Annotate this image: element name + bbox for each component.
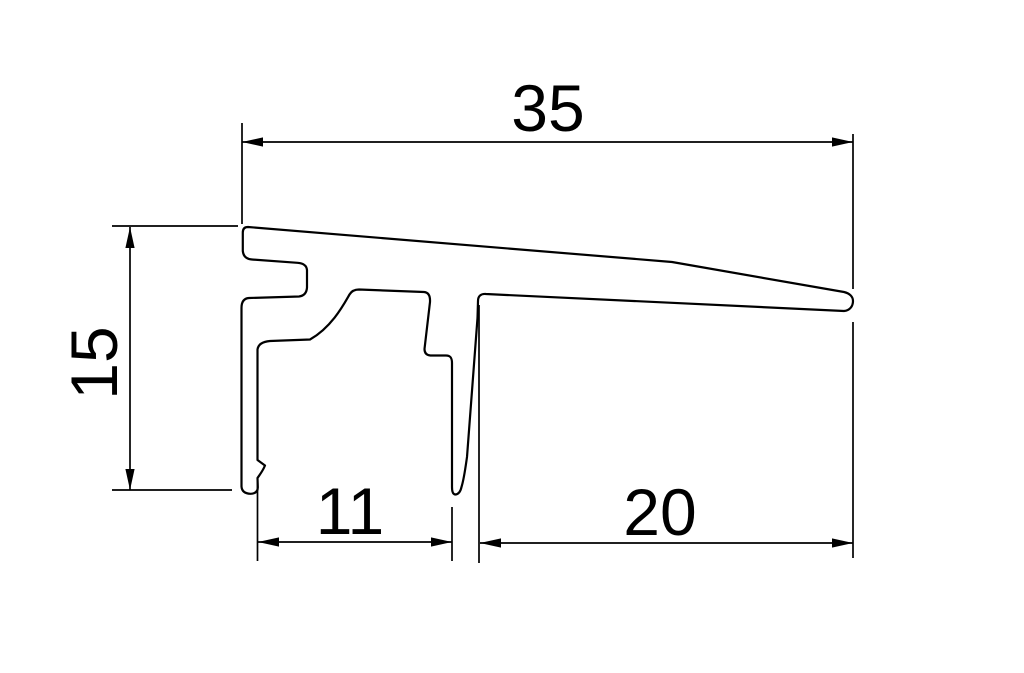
arrowhead-right-icon	[832, 538, 853, 547]
dimension-bottom-inner-width: 11	[258, 474, 453, 561]
profile-cross-section-path	[242, 227, 854, 495]
arrowhead-right-icon	[832, 137, 853, 146]
arrowhead-left-icon	[480, 538, 501, 547]
profile-outline	[242, 227, 854, 495]
arrowhead-left-icon	[258, 537, 279, 546]
profile-drawing-canvas: 35 15 11 20	[0, 0, 1024, 673]
arrowhead-left-icon	[242, 137, 263, 146]
dimension-label-top-width: 35	[511, 71, 584, 145]
dimension-label-bottom-inner-width: 11	[316, 474, 385, 548]
technical-drawing: 35 15 11 20	[0, 0, 1024, 673]
arrowhead-up-icon	[125, 227, 134, 248]
dimension-label-left-height: 15	[57, 326, 131, 399]
arrowhead-right-icon	[431, 537, 452, 546]
dimension-left-height: 15	[57, 226, 238, 490]
dimension-label-bottom-right-width: 20	[623, 475, 696, 549]
dimension-top-width: 35	[242, 71, 853, 289]
dimension-bottom-right-width: 20	[479, 305, 853, 563]
arrowhead-down-icon	[125, 469, 134, 490]
